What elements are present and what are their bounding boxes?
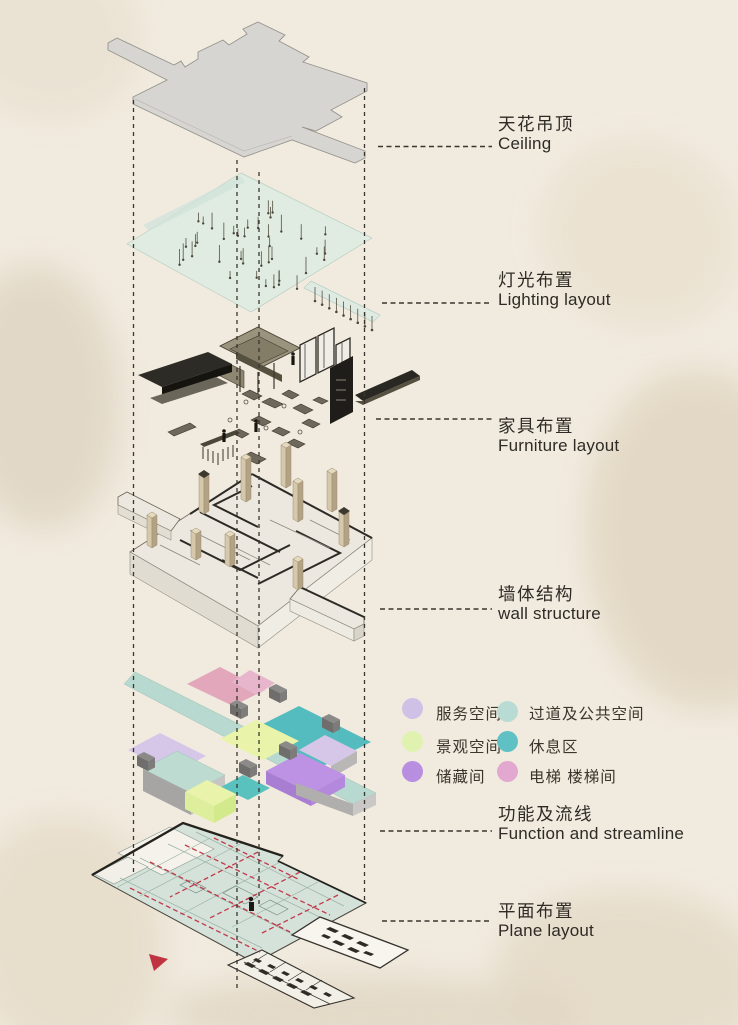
label-ceiling-zh: 天花吊顶 [498, 114, 574, 134]
label-plane-zh: 平面布置 [498, 901, 594, 921]
label-plane-en: Plane layout [498, 921, 594, 941]
label-wall-zh: 墙体结构 [498, 584, 601, 604]
label-ceiling: 天花吊顶 Ceiling [498, 114, 574, 154]
layer-ceiling-plate [108, 22, 367, 163]
layer-plane-layout [92, 823, 408, 1008]
legend-label-storage-room: 储藏间 [436, 765, 486, 787]
label-furniture-zh: 家具布置 [498, 416, 619, 436]
legend-label-landscape-space: 景观空间 [436, 735, 502, 757]
legend-dot-storage-room [402, 761, 423, 782]
legend-dot-rest-area [497, 731, 518, 752]
layer-lighting-plane [127, 173, 380, 331]
label-function-zh: 功能及流线 [498, 804, 684, 824]
label-function-en: Function and streamline [498, 824, 684, 844]
label-wall-en: wall structure [498, 604, 601, 624]
legend-label-elevator-stairwell: 电梯 楼梯间 [529, 765, 617, 787]
diagram-page: 天花吊顶 Ceiling 灯光布置 Lighting layout 家具布置 F… [0, 0, 738, 1025]
legend-dot-corridor-public-space [497, 701, 518, 722]
layer-function-zones [124, 667, 376, 823]
legend-label-corridor-public-space: 过道及公共空间 [529, 702, 645, 724]
label-function: 功能及流线 Function and streamline [498, 804, 684, 844]
legend-dot-landscape-space [402, 731, 423, 752]
label-lighting-en: Lighting layout [498, 290, 611, 310]
label-wall: 墙体结构 wall structure [498, 584, 601, 624]
legend-dot-elevator-stairwell [497, 761, 518, 782]
exploded-axonometric-diagram [0, 0, 738, 1025]
layer-wall-structure [118, 442, 372, 648]
label-lighting: 灯光布置 Lighting layout [498, 270, 611, 310]
layer-furniture [138, 327, 420, 465]
label-furniture-en: Furniture layout [498, 436, 619, 456]
legend-dot-service-space [402, 698, 423, 719]
label-furniture: 家具布置 Furniture layout [498, 416, 619, 456]
label-lighting-zh: 灯光布置 [498, 270, 611, 290]
legend-label-rest-area: 休息区 [529, 735, 579, 757]
label-ceiling-en: Ceiling [498, 134, 574, 154]
north-arrow [149, 954, 168, 971]
label-plane: 平面布置 Plane layout [498, 901, 594, 941]
legend-label-service-space: 服务空间 [436, 702, 502, 724]
